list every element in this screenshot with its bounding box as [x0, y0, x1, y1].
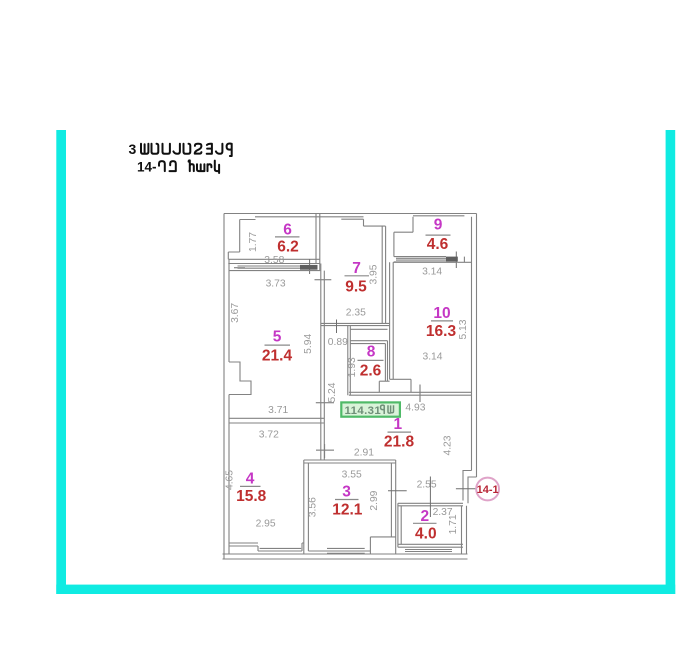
svg-text:6.2: 6.2: [277, 239, 299, 256]
svg-text:3.55: 3.55: [342, 470, 362, 481]
svg-text:2.35: 2.35: [346, 308, 366, 319]
svg-text:3.67: 3.67: [230, 303, 241, 323]
svg-text:3: 3: [129, 141, 137, 157]
svg-text:4.6: 4.6: [427, 236, 449, 253]
svg-text:14-: 14-: [137, 159, 157, 174]
svg-text:1.77: 1.77: [248, 232, 259, 252]
svg-text:0.89: 0.89: [328, 337, 348, 348]
svg-text:3.72: 3.72: [259, 429, 279, 440]
svg-text:2.91: 2.91: [354, 447, 374, 458]
svg-text:3.73: 3.73: [266, 279, 286, 290]
svg-text:2.6: 2.6: [360, 362, 382, 379]
svg-text:8: 8: [367, 343, 376, 360]
svg-text:3.14: 3.14: [422, 352, 442, 363]
svg-text:12.1: 12.1: [332, 501, 363, 518]
svg-text:3.95: 3.95: [369, 264, 380, 284]
svg-text:1: 1: [393, 416, 402, 433]
svg-text:4.23: 4.23: [442, 435, 453, 455]
svg-text:9.5: 9.5: [345, 279, 367, 296]
svg-text:7: 7: [352, 260, 361, 277]
svg-text:6: 6: [283, 222, 292, 239]
svg-text:1.71: 1.71: [448, 514, 459, 534]
svg-text:2.99: 2.99: [369, 490, 380, 510]
svg-text:3.14: 3.14: [422, 267, 442, 278]
svg-text:21.4: 21.4: [262, 348, 293, 365]
svg-text:5.94: 5.94: [303, 334, 314, 354]
svg-text:15.8: 15.8: [236, 488, 267, 505]
svg-text:14-1: 14-1: [477, 484, 499, 496]
svg-text:5.13: 5.13: [458, 319, 469, 339]
svg-text:2.95: 2.95: [256, 519, 276, 530]
svg-text:3.58: 3.58: [264, 255, 284, 266]
svg-text:114.31: 114.31: [345, 405, 382, 417]
svg-text:5: 5: [273, 329, 282, 346]
svg-text:1.93: 1.93: [347, 357, 358, 377]
svg-text:3.56: 3.56: [307, 497, 318, 517]
svg-text:9: 9: [434, 217, 443, 234]
svg-text:16.3: 16.3: [426, 323, 457, 340]
svg-text:5.24: 5.24: [327, 382, 338, 402]
svg-text:3.71: 3.71: [268, 405, 288, 416]
svg-text:10: 10: [433, 305, 450, 322]
svg-text:21.8: 21.8: [384, 433, 415, 450]
svg-text:4.0: 4.0: [415, 525, 437, 542]
svg-text:2: 2: [420, 508, 429, 525]
svg-text:4.93: 4.93: [405, 403, 425, 414]
svg-text:4.65: 4.65: [224, 470, 235, 490]
svg-text:2.55: 2.55: [417, 480, 437, 491]
svg-text:3: 3: [342, 484, 351, 501]
svg-text:4: 4: [246, 470, 255, 487]
